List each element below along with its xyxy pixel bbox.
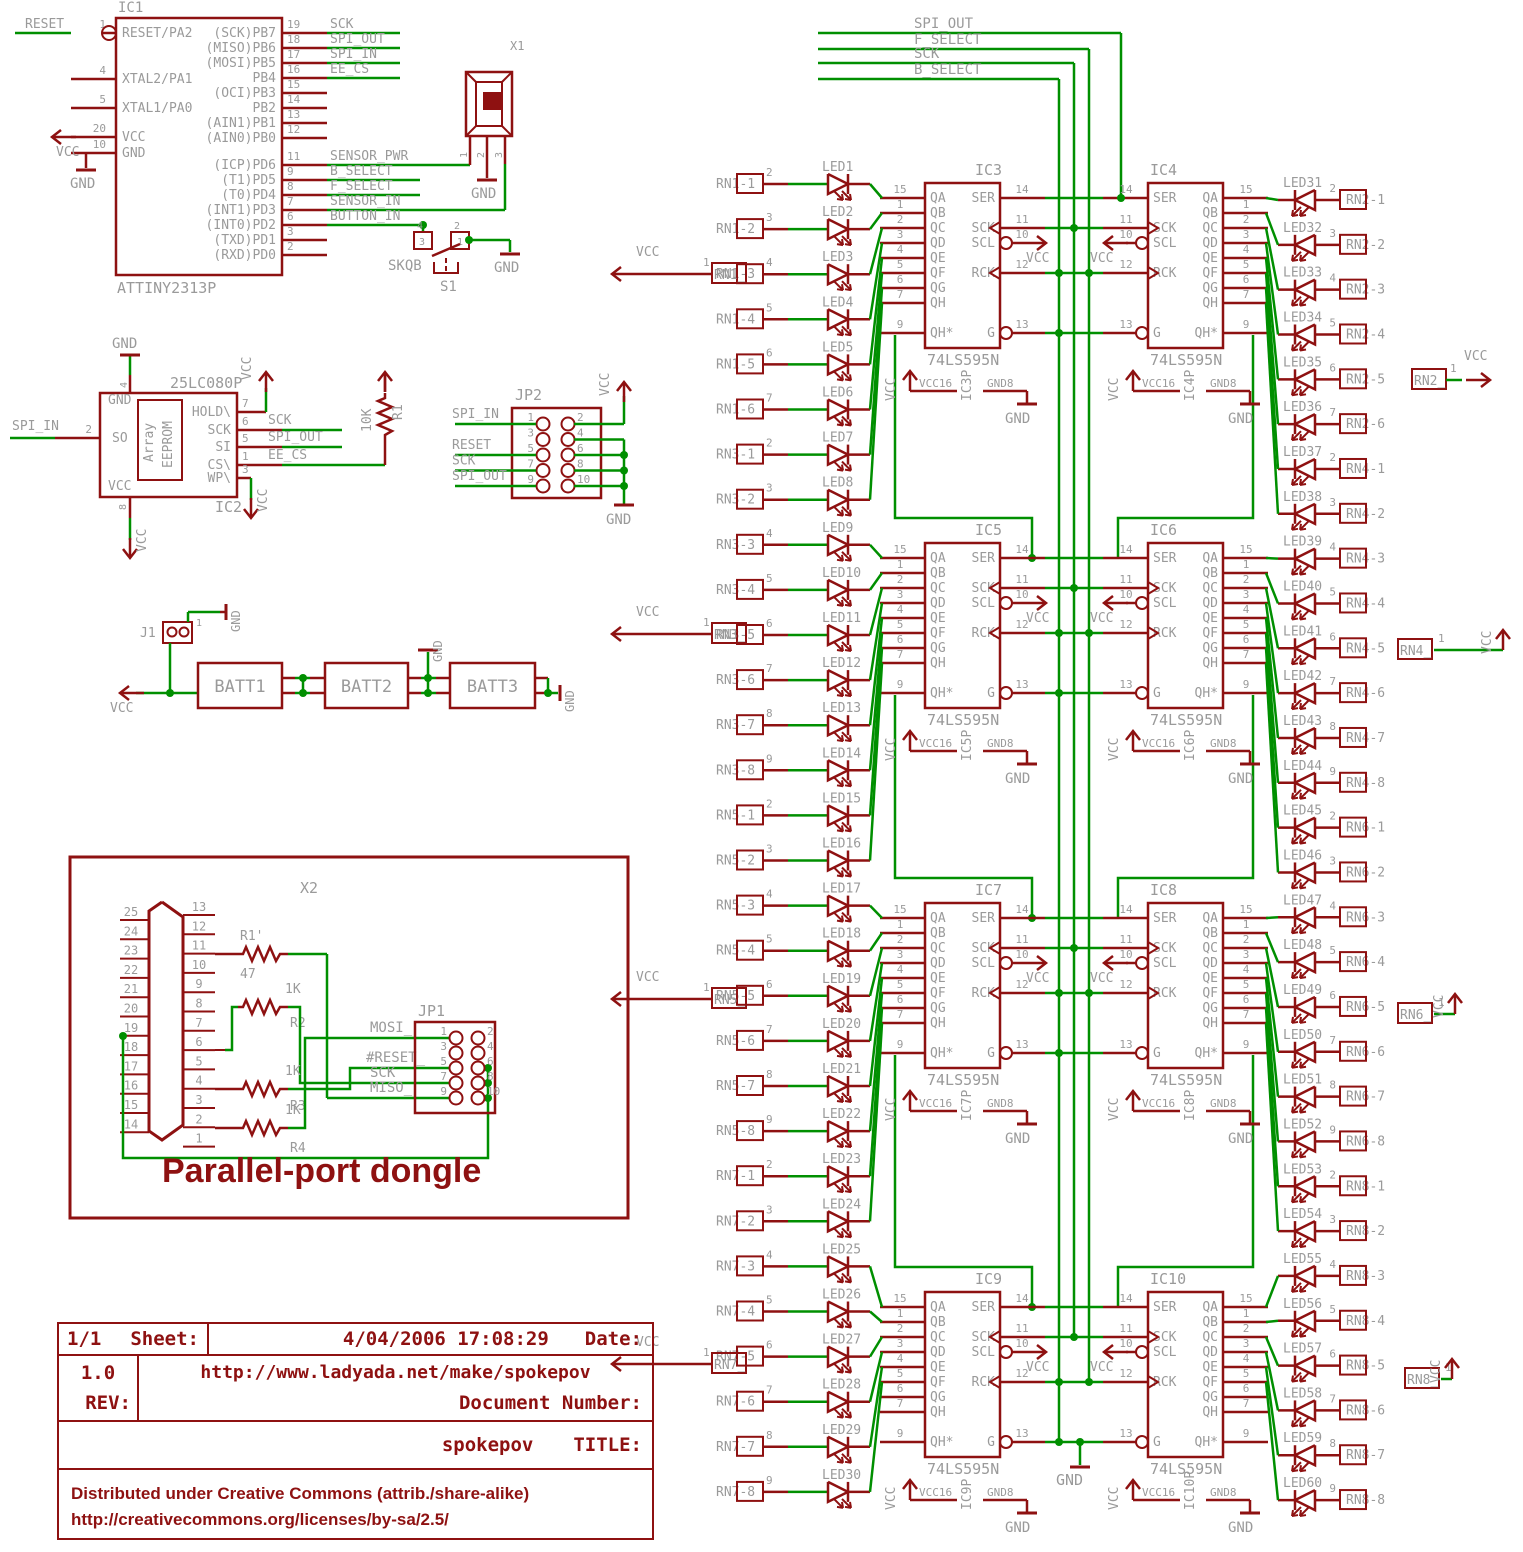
pin-number: 12	[1015, 1367, 1028, 1380]
pin-number: 10	[1015, 1337, 1028, 1350]
pin-number: 13	[1119, 1038, 1132, 1051]
pin-number: 6	[487, 1055, 494, 1068]
pin-name: QE	[930, 1360, 946, 1375]
led-emission-arrow-icon	[850, 555, 851, 561]
vcc-label: VCC	[1026, 971, 1049, 986]
rn-pin-label: RN1-2	[716, 222, 755, 237]
led-label: LED12	[822, 656, 861, 671]
pin-number: 3	[419, 237, 425, 248]
led-emission-arrow-icon	[850, 465, 851, 471]
junction-dot	[1055, 1438, 1063, 1446]
led-diode-icon	[1295, 773, 1315, 793]
pin-name: SI	[215, 440, 231, 455]
vcc-label: VCC	[1026, 1360, 1049, 1375]
pin-name: QF	[1202, 1375, 1218, 1390]
pin-number: 5	[897, 618, 904, 631]
pin-number: 5	[897, 1367, 904, 1380]
ic-designator: IC10	[1150, 1270, 1186, 1288]
led-diode-icon	[1295, 907, 1315, 927]
net-label: #RESET_	[366, 1050, 426, 1066]
pin-number: 4	[897, 243, 904, 256]
led-label: LED54	[1283, 1207, 1322, 1222]
pin-name: QH	[930, 656, 946, 671]
led-emission-arrow-icon	[1300, 300, 1301, 306]
pin-circle	[472, 1047, 485, 1060]
rn-pin-label: RN3-4	[716, 583, 755, 598]
pin-number: 5	[242, 432, 249, 445]
vcc-label: VCC	[1464, 349, 1487, 364]
vcc-label: VCC	[56, 145, 79, 160]
pin-name: SER	[972, 1300, 996, 1315]
pin-name: QE	[1202, 611, 1218, 626]
power-part-designator: IC5P	[960, 730, 975, 761]
vcc-label: VCC	[1090, 971, 1113, 986]
led-label: LED55	[1283, 1252, 1322, 1267]
led-emission-arrow-icon	[1300, 1062, 1301, 1068]
pin-number: 13	[1015, 318, 1028, 331]
sensor-bevel	[466, 126, 476, 136]
pin-circle	[472, 1077, 485, 1090]
pin-number: 9	[897, 1427, 904, 1440]
led-fan-wire	[1266, 917, 1278, 918]
pin-number: 1	[703, 981, 710, 994]
gnd-label: GND	[1056, 1471, 1083, 1489]
led-label: LED15	[822, 791, 861, 806]
inverted-pin-bubble-icon	[1136, 327, 1148, 339]
date-value: 4/04/2006 17:08:29	[343, 1328, 549, 1350]
power-part-designator: IC7P	[960, 1090, 975, 1121]
pin-name: QB	[930, 566, 946, 581]
net-label: SPI_IN	[12, 419, 59, 434]
led-diode-icon	[1295, 549, 1315, 569]
gnd-label: GND	[1228, 1520, 1253, 1536]
pin-name: G	[1153, 1046, 1161, 1061]
led-label: LED19	[822, 972, 861, 987]
rn-pin-label: RN5-2	[716, 854, 755, 869]
rn-pin-label: RN3-1	[716, 448, 755, 463]
led-emission-arrow-icon	[1292, 838, 1293, 844]
led-emission-arrow-icon	[850, 1276, 851, 1282]
titleblock-title-row: spokepov TITLE:	[59, 1422, 652, 1470]
pin-number: 7	[897, 1008, 904, 1021]
led-diode-icon	[1295, 324, 1315, 344]
pin-number: 9	[1243, 318, 1250, 331]
pin-number: 11	[1015, 573, 1028, 586]
vcc-label: VCC	[598, 373, 613, 396]
pin-number: 10	[1015, 228, 1028, 241]
led-emission-arrow-icon	[842, 1051, 843, 1057]
rn-common-label: RN1_	[714, 268, 745, 283]
pin-number: 3	[494, 152, 505, 158]
power-part-designator: IC8P	[1183, 1090, 1198, 1121]
led-label: LED25	[822, 1242, 861, 1257]
power-pin-label: VCC16	[1142, 737, 1175, 750]
mcu-part-name: ATTINY2313P	[117, 279, 216, 297]
pin-number: 12	[1119, 1367, 1132, 1380]
pin-circle	[472, 1092, 485, 1105]
pin-name: G	[987, 1435, 995, 1450]
pin-circle	[472, 1062, 485, 1075]
pin-number: 17	[124, 1059, 138, 1073]
pin-number: 8	[287, 180, 294, 193]
rn-pin-label: RN7-4	[716, 1305, 755, 1320]
pin-name: QG	[1202, 1001, 1218, 1016]
pin-name: QC	[1202, 941, 1218, 956]
power-pin-label: GND8	[1210, 377, 1237, 390]
pin-name: QE	[930, 611, 946, 626]
pin-number: 4	[766, 1248, 773, 1261]
led-emission-arrow-icon	[850, 1186, 851, 1192]
pin-number: 10	[192, 958, 206, 972]
rn-pin-label: RN5-3	[716, 899, 755, 914]
rn-pin-label: RN7-7	[716, 1440, 755, 1455]
junction-dot	[1055, 329, 1063, 337]
led-emission-arrow-icon	[1292, 1196, 1293, 1202]
led-label: LED33	[1283, 266, 1322, 281]
led-label: LED48	[1283, 938, 1322, 953]
pin-number: 5	[1243, 978, 1250, 991]
pin-number: 2	[85, 423, 92, 436]
led-emission-arrow-icon	[1300, 1510, 1301, 1516]
led-label: LED13	[822, 701, 861, 716]
pin-number: 7	[195, 1016, 202, 1030]
resistor-icon	[238, 947, 288, 961]
ic-part-name: 74LS595N	[1150, 1071, 1222, 1089]
pin-number: 3	[1243, 1337, 1250, 1350]
pin-name: QC	[930, 1330, 946, 1345]
led-diode-icon	[828, 760, 848, 780]
led-emission-arrow-icon	[842, 1186, 843, 1192]
sheet-value: 1/1	[67, 1328, 101, 1350]
vcc-label: VCC	[1480, 631, 1495, 654]
pin-name: XTAL2/PA1	[122, 72, 192, 87]
led-diode-icon	[828, 625, 848, 645]
pin-number: 2	[1329, 810, 1336, 823]
led-fan-wire	[870, 184, 882, 198]
pin-number: 1	[196, 618, 202, 629]
pin-number: 7	[242, 397, 249, 410]
pin-name: SCL	[972, 236, 996, 251]
pin-name: QG	[930, 281, 946, 296]
led-fan-wire	[870, 1312, 882, 1323]
net-label: EE_CS	[268, 448, 307, 463]
pin-name: QD	[930, 596, 946, 611]
inverted-pin-bubble-icon	[1136, 687, 1148, 699]
pin-number: 5	[1329, 944, 1336, 957]
junction-dot	[1055, 989, 1063, 997]
pin-number: 10	[1119, 948, 1132, 961]
vcc-label: VCC	[1107, 1487, 1122, 1510]
junction-dot	[620, 451, 628, 459]
pin-number: 1	[440, 1025, 447, 1038]
pin-name: QB	[930, 926, 946, 941]
pin-number: 4	[766, 256, 773, 269]
led-emission-arrow-icon	[842, 465, 843, 471]
vcc-label: VCC	[135, 529, 150, 552]
junction-dot	[299, 674, 307, 682]
pin-circle	[562, 449, 575, 462]
pin-number: 12	[1015, 618, 1028, 631]
pin-number: 7	[766, 1023, 773, 1036]
pin-number: 2	[897, 1322, 904, 1335]
pin-circle	[450, 1062, 463, 1075]
pin-number: 13	[1119, 1427, 1132, 1440]
junction-dot	[1085, 989, 1093, 997]
led-label: LED14	[822, 746, 861, 761]
pin-circle	[562, 418, 575, 431]
led-emission-arrow-icon	[842, 780, 843, 786]
led-diode-icon	[1295, 683, 1315, 703]
pin-number: 8	[766, 707, 773, 720]
pin-name: QA	[930, 911, 946, 926]
pin-number: 3	[195, 1093, 202, 1107]
pin-number: 1	[457, 237, 463, 248]
power-pin-label: GND8	[987, 1486, 1014, 1499]
led-emission-arrow-icon	[1300, 1286, 1301, 1292]
pin-name: QB	[930, 206, 946, 221]
pin-number: 20	[124, 1002, 138, 1016]
pin-number: 7	[1243, 1008, 1250, 1021]
net-label: SPI_IN	[330, 47, 377, 62]
led-emission-arrow-icon	[850, 1051, 851, 1057]
junction-dot	[1055, 1378, 1063, 1386]
led-fan-wire	[1266, 1321, 1278, 1322]
led-label: LED60	[1283, 1476, 1322, 1491]
pin-number: 8	[766, 1068, 773, 1081]
pin-number: 8	[487, 1070, 494, 1083]
pin-name: QA	[1202, 551, 1218, 566]
rn-pin-label: RN3-3	[716, 538, 755, 553]
pin-name: QE	[930, 971, 946, 986]
pin-number: 2	[476, 152, 487, 158]
pin-number: 13	[1015, 678, 1028, 691]
net-label: RESET	[452, 438, 491, 453]
pin-number: 24	[124, 924, 138, 938]
pin-number: 2	[487, 1025, 494, 1038]
gnd-label: GND	[1228, 411, 1253, 427]
led-emission-arrow-icon	[850, 284, 851, 290]
junction-dot	[1085, 1378, 1093, 1386]
pin-number: 12	[1119, 258, 1132, 271]
led-label: LED53	[1283, 1162, 1322, 1177]
rn-pin-label: RN1-5	[716, 357, 755, 372]
led-emission-arrow-icon	[1292, 658, 1293, 664]
led-diode-icon	[828, 400, 848, 420]
pin-name: QG	[930, 1390, 946, 1405]
led-emission-arrow-icon	[842, 555, 843, 561]
pin-number: 5	[527, 442, 534, 455]
pin-name: SCL	[1153, 596, 1177, 611]
pin-number: 11	[1015, 933, 1028, 946]
pin-name: QF	[1202, 266, 1218, 281]
led-emission-arrow-icon	[850, 1502, 851, 1508]
pin-number: 3	[1243, 228, 1250, 241]
led-fan-wire	[1266, 198, 1278, 200]
power-pin-label: VCC16	[919, 737, 952, 750]
net-label: SPI_OUT	[330, 32, 385, 47]
pin-number: 16	[287, 63, 300, 76]
led-diode-icon	[1295, 1311, 1315, 1331]
pin-number: 7	[440, 1070, 447, 1083]
vcc-label: VCC	[636, 605, 659, 620]
led-emission-arrow-icon	[1300, 927, 1301, 933]
pin-number: 12	[1119, 618, 1132, 631]
inverted-pin-bubble-icon	[1000, 237, 1012, 249]
pin-number: 1	[1450, 362, 1457, 375]
inverted-pin-bubble-icon	[1000, 1346, 1012, 1358]
pin-number: 6	[242, 415, 249, 428]
inverted-pin-bubble-icon	[1000, 327, 1012, 339]
pin-number: 7	[287, 195, 294, 208]
resistor-icon	[238, 1000, 288, 1014]
pin-number: 13	[192, 900, 206, 914]
pin-number: 13	[1119, 678, 1132, 691]
pin-name: QG	[1202, 1390, 1218, 1405]
vcc-label: VCC	[884, 1098, 899, 1121]
led-emission-arrow-icon	[1292, 1107, 1293, 1113]
pin-number: 3	[766, 1203, 773, 1216]
led-diode-icon	[1295, 414, 1315, 434]
pin-number: 1	[1243, 918, 1250, 931]
connector-designator: X2	[300, 879, 318, 897]
pin-name: QE	[1202, 1360, 1218, 1375]
pin-name: SER	[1153, 911, 1177, 926]
gnd-label: GND	[229, 610, 243, 632]
pin-number: 3	[440, 1040, 447, 1053]
pin-number: 21	[124, 982, 138, 996]
pin-number: 12	[1015, 978, 1028, 991]
led-emission-arrow-icon	[1292, 703, 1293, 709]
led-label: LED34	[1283, 310, 1322, 325]
pin-number: 7	[1329, 406, 1336, 419]
pin-number: 11	[1119, 933, 1132, 946]
led-diode-icon	[828, 1482, 848, 1502]
led-diode-icon	[1295, 235, 1315, 255]
pin-name: GND	[122, 146, 146, 161]
pin-circle	[537, 480, 550, 493]
led-diode-icon	[828, 1211, 848, 1231]
pin-name: QF	[1202, 626, 1218, 641]
led-emission-arrow-icon	[850, 1367, 851, 1373]
led-label: LED50	[1283, 1028, 1322, 1043]
led-emission-arrow-icon	[842, 916, 843, 922]
led-diode-icon	[828, 715, 848, 735]
vcc-label: VCC	[1107, 1098, 1122, 1121]
pin-name: QH*	[930, 1435, 953, 1450]
pin-number: 14	[1119, 903, 1133, 916]
pin-name: SCL	[1153, 1345, 1177, 1360]
pin-name: QH	[930, 1405, 946, 1420]
rn-pin-label: RN7-6	[716, 1395, 755, 1410]
rn-pin-label: RN5-6	[716, 1034, 755, 1049]
pin-number: 13	[1119, 318, 1132, 331]
rn-pin-label: RN7-3	[716, 1259, 755, 1274]
led-emission-arrow-icon	[850, 735, 851, 741]
led-diode-icon	[828, 264, 848, 284]
pin-name: (ICP)PD6	[213, 158, 276, 173]
pin-name: G	[987, 686, 995, 701]
header-designator: JP2	[515, 386, 542, 404]
pin-number: 9	[440, 1085, 447, 1098]
led-label: LED40	[1283, 579, 1322, 594]
pin-number: 13	[287, 108, 300, 121]
rn-pin-label: RN1-6	[716, 403, 755, 418]
led-diode-icon	[828, 1076, 848, 1096]
pin-number: 9	[195, 977, 202, 991]
pin-name: (AIN0)PB0	[206, 131, 276, 146]
pin-number: 1	[1438, 632, 1445, 645]
pin-number: 6	[766, 617, 773, 630]
net-label: SENSOR_PWR	[330, 149, 408, 164]
led-diode-icon	[1295, 1221, 1315, 1241]
gnd-label: GND	[1005, 771, 1030, 787]
pin-number: 15	[893, 903, 906, 916]
pin-number: 17	[287, 48, 300, 61]
pin-number: 15	[893, 1292, 906, 1305]
pin-name: HOLD\	[192, 405, 231, 420]
led-emission-arrow-icon	[1300, 748, 1301, 754]
rn-pin-label: RN7-8	[716, 1485, 755, 1500]
led-emission-arrow-icon	[1292, 1331, 1293, 1337]
power-pin-label: GND8	[987, 737, 1014, 750]
pin-number: 10	[487, 1085, 500, 1098]
pin-name: QH*	[930, 326, 953, 341]
pin-name: QD	[1202, 1345, 1218, 1360]
pin-number: 9	[897, 1038, 904, 1051]
led-emission-arrow-icon	[1292, 1241, 1293, 1247]
led-emission-arrow-icon	[850, 374, 851, 380]
led-emission-arrow-icon	[1300, 1196, 1301, 1202]
led-fan-wire	[870, 1266, 882, 1307]
led-emission-arrow-icon	[850, 690, 851, 696]
pin-number: 2	[1243, 1322, 1250, 1335]
pin-name: (INT0)PD2	[206, 218, 276, 233]
junction-dot	[1070, 1333, 1078, 1341]
db25-connector	[149, 902, 183, 1140]
led-label: LED21	[822, 1062, 861, 1077]
pin-name: QB	[1202, 926, 1218, 941]
pin-number: 2	[766, 797, 773, 810]
led-label: LED57	[1283, 1342, 1322, 1357]
inverted-pin-bubble-icon	[1136, 237, 1148, 249]
led-emission-arrow-icon	[1292, 479, 1293, 485]
led-emission-arrow-icon	[842, 1006, 843, 1012]
pin-number: 1	[195, 1132, 202, 1146]
power-part-designator: IC10P	[1183, 1471, 1198, 1510]
pin-number: 7	[766, 392, 773, 405]
pin-name: SCL	[972, 1345, 996, 1360]
rn-common-label: RN7_	[714, 1358, 745, 1373]
led-label: LED11	[822, 611, 861, 626]
led-emission-arrow-icon	[850, 1412, 851, 1418]
pin-number: 3	[527, 427, 534, 440]
led-diode-icon	[1295, 1356, 1315, 1376]
led-emission-arrow-icon	[842, 1502, 843, 1508]
power-pin-label: VCC16	[1142, 1097, 1175, 1110]
led-emission-arrow-icon	[842, 1141, 843, 1147]
pin-number: 6	[1329, 630, 1336, 643]
led-label: LED32	[1283, 221, 1322, 236]
pin-name: G	[1153, 1435, 1161, 1450]
ic-designator: IC7	[975, 881, 1002, 899]
led-label: LED46	[1283, 848, 1322, 863]
junction-dot	[1055, 269, 1063, 277]
pin-number: 23	[124, 944, 138, 958]
gnd-label: GND	[1005, 411, 1030, 427]
led-diode-icon	[828, 941, 848, 961]
led-label: LED4	[822, 295, 853, 310]
pin-number: 25	[124, 905, 138, 919]
